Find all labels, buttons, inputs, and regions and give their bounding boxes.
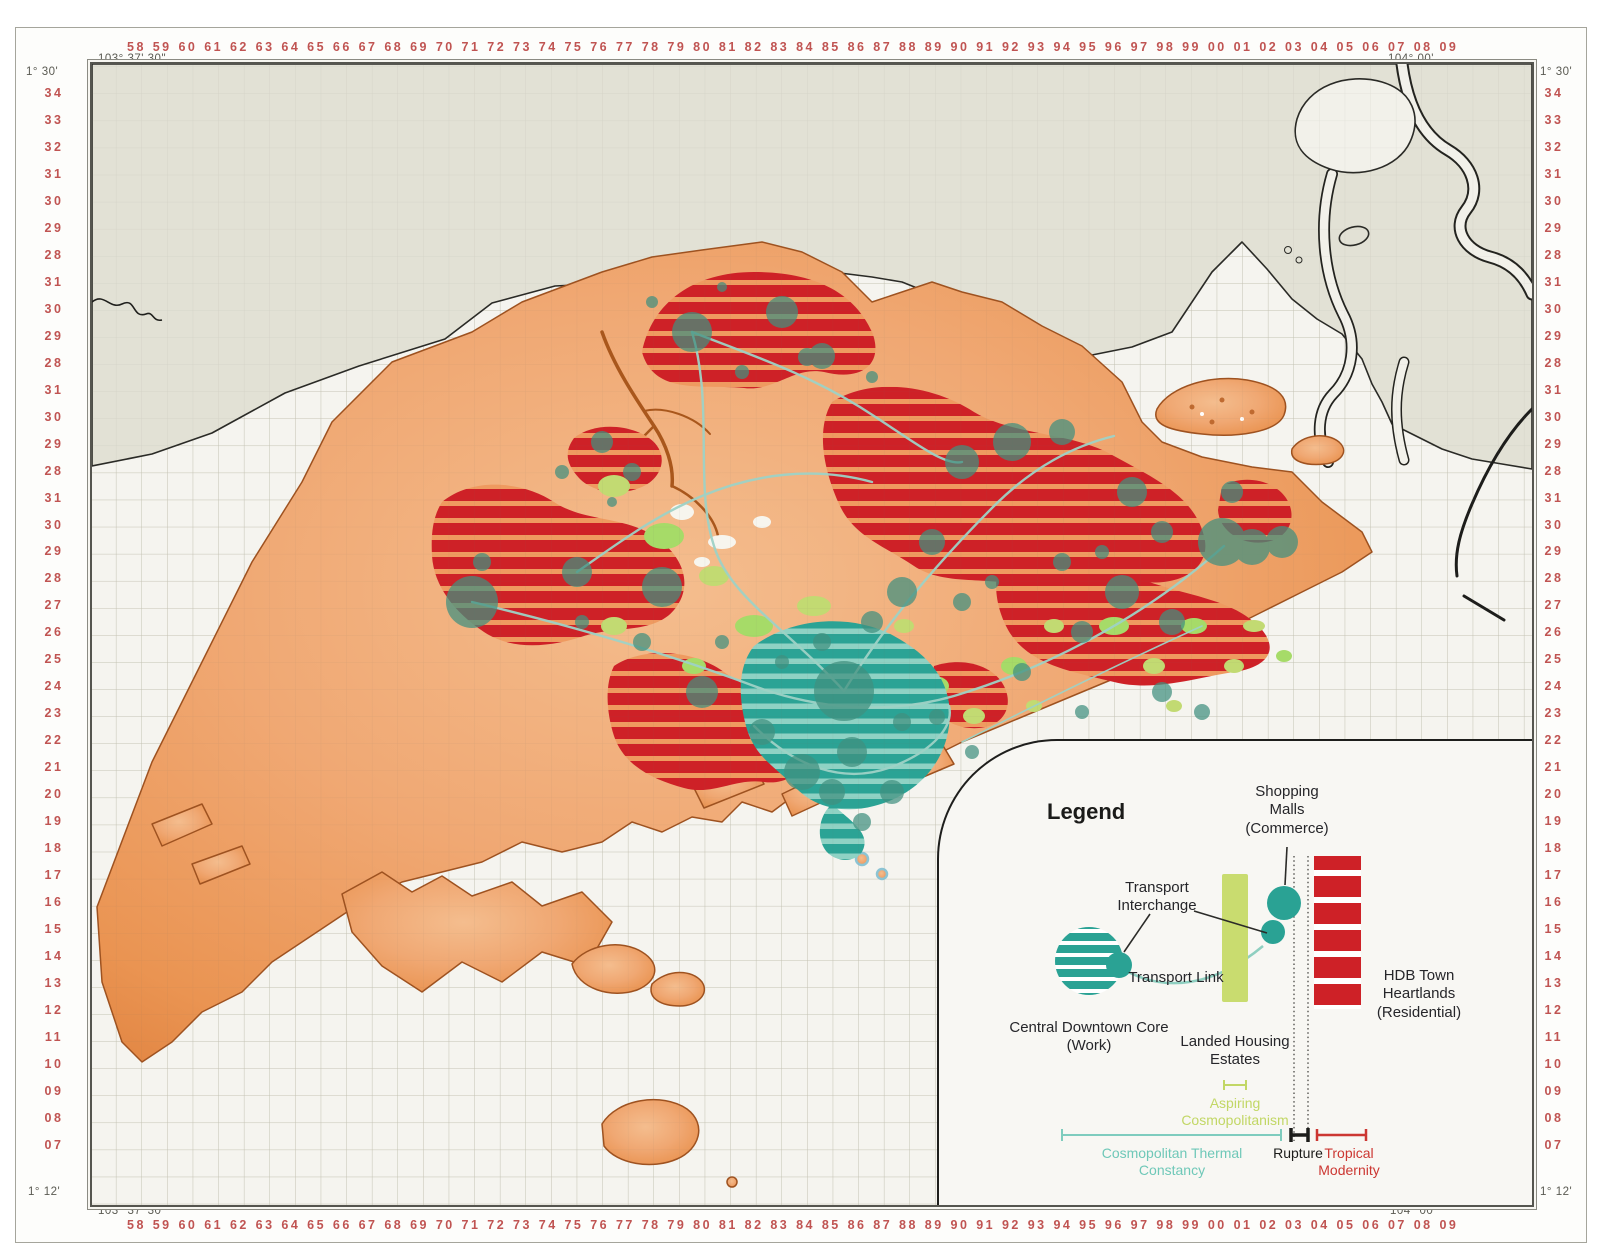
grid-label-x: 58 <box>127 40 146 54</box>
grid-label-x: 09 <box>1439 1218 1458 1232</box>
grid-label-y: 31 <box>1545 167 1564 181</box>
grid-label-y: 20 <box>45 787 64 801</box>
legend-label-hdb-town: HDB Town Heartlands (Residential) <box>1364 967 1474 1022</box>
grid-label-y: 14 <box>45 949 64 963</box>
longitude-axis-top: 5859606162636465666768697071727374757677… <box>127 40 1459 54</box>
grid-label-y: 28 <box>1545 248 1564 262</box>
grid-label-x: 87 <box>873 1218 892 1232</box>
map-sheet: 5859606162636465666768697071727374757677… <box>0 0 1600 1253</box>
grid-label-x: 76 <box>590 1218 609 1232</box>
grid-label-y: 30 <box>1545 194 1564 208</box>
grid-label-x: 72 <box>487 40 506 54</box>
grid-label-y: 27 <box>1545 598 1564 612</box>
grid-label-y: 22 <box>45 733 64 747</box>
grid-label-y: 12 <box>45 1003 64 1017</box>
grid-label-y: 23 <box>1545 706 1564 720</box>
grid-label-y: 08 <box>1545 1111 1564 1125</box>
grid-label-x: 80 <box>693 1218 712 1232</box>
grid-label-x: 78 <box>642 1218 661 1232</box>
grid-label-y: 11 <box>1545 1030 1563 1044</box>
grid-label-y: 29 <box>1545 329 1564 343</box>
grid-label-y: 28 <box>45 464 64 478</box>
grid-label-x: 07 <box>1388 40 1407 54</box>
grid-label-x: 73 <box>513 40 532 54</box>
grid-label-x: 94 <box>1053 1218 1072 1232</box>
grid-label-x: 00 <box>1208 40 1227 54</box>
grid-label-x: 88 <box>899 40 918 54</box>
grid-label-y: 17 <box>1545 868 1564 882</box>
grid-label-y: 29 <box>1545 544 1564 558</box>
grid-label-x: 76 <box>590 40 609 54</box>
grid-label-y: 21 <box>1545 760 1564 774</box>
grid-label-x: 80 <box>693 40 712 54</box>
grid-label-x: 98 <box>1156 1218 1175 1232</box>
grid-label-x: 98 <box>1156 40 1175 54</box>
legend-label-cosmopolitan: Cosmopolitan Thermal Constancy <box>1091 1145 1253 1179</box>
grid-label-x: 75 <box>564 1218 583 1232</box>
grid-label-x: 84 <box>796 1218 815 1232</box>
grid-label-x: 08 <box>1414 1218 1433 1232</box>
grid-label-x: 03 <box>1285 40 1304 54</box>
grid-label-x: 06 <box>1362 40 1381 54</box>
grid-label-x: 90 <box>951 40 970 54</box>
grid-label-y: 34 <box>45 86 64 100</box>
grid-label-x: 64 <box>281 40 300 54</box>
lat-corner-top-right: 1° 30' <box>1540 66 1572 78</box>
grid-label-x: 89 <box>925 1218 944 1232</box>
grid-label-y: 15 <box>1545 922 1564 936</box>
latitude-axis-right: 3433323130292831302928313029283130292827… <box>1534 86 1574 1152</box>
longitude-axis-bottom: 5859606162636465666768697071727374757677… <box>127 1218 1459 1232</box>
grid-label-y: 11 <box>45 1030 63 1044</box>
legend-panel: Legend <box>937 739 1534 1207</box>
hdb-town-symbol <box>1314 856 1361 1009</box>
grid-label-y: 09 <box>1545 1084 1564 1098</box>
grid-label-x: 95 <box>1079 1218 1098 1232</box>
grid-label-x: 66 <box>333 40 352 54</box>
shopping-mall-symbol <box>1267 886 1301 920</box>
grid-label-x: 91 <box>976 40 995 54</box>
grid-label-x: 96 <box>1105 1218 1124 1232</box>
grid-label-y: 31 <box>45 491 64 505</box>
grid-label-x: 79 <box>667 1218 686 1232</box>
grid-label-y: 24 <box>1545 679 1564 693</box>
grid-label-x: 60 <box>178 40 197 54</box>
grid-label-x: 89 <box>925 40 944 54</box>
grid-label-y: 15 <box>45 922 64 936</box>
grid-label-x: 86 <box>848 40 867 54</box>
grid-label-x: 83 <box>770 40 789 54</box>
grid-label-x: 75 <box>564 40 583 54</box>
grid-label-x: 93 <box>1028 1218 1047 1232</box>
grid-label-y: 30 <box>1545 518 1564 532</box>
grid-label-x: 07 <box>1388 1218 1407 1232</box>
grid-label-y: 17 <box>45 868 64 882</box>
grid-label-y: 19 <box>1545 814 1564 828</box>
grid-label-y: 09 <box>45 1084 64 1098</box>
grid-label-x: 77 <box>616 40 635 54</box>
grid-label-y: 31 <box>1545 491 1564 505</box>
grid-label-x: 06 <box>1362 1218 1381 1232</box>
latitude-axis-left: 3433323130292831302928313029283130292827… <box>34 86 74 1152</box>
grid-label-x: 83 <box>770 1218 789 1232</box>
lat-corner-bottom-left: 1° 12' <box>28 1186 60 1198</box>
grid-label-x: 60 <box>178 1218 197 1232</box>
legend-label-aspiring: Aspiring Cosmopolitanism <box>1165 1095 1305 1129</box>
grid-label-x: 85 <box>822 40 841 54</box>
grid-label-y: 25 <box>45 652 64 666</box>
grid-label-x: 63 <box>256 40 275 54</box>
grid-label-x: 02 <box>1259 1218 1278 1232</box>
grid-label-y: 26 <box>1545 625 1564 639</box>
grid-label-y: 29 <box>45 437 64 451</box>
grid-label-x: 78 <box>642 40 661 54</box>
grid-label-x: 82 <box>745 40 764 54</box>
legend-label-transport-interchange: Transport Interchange <box>1102 879 1212 916</box>
grid-label-y: 07 <box>45 1138 64 1152</box>
grid-label-x: 85 <box>822 1218 841 1232</box>
grid-label-x: 81 <box>719 1218 738 1232</box>
grid-label-y: 30 <box>45 194 64 208</box>
grid-label-x: 68 <box>384 40 403 54</box>
grid-label-y: 13 <box>1545 976 1564 990</box>
grid-label-y: 29 <box>1545 221 1564 235</box>
grid-label-y: 29 <box>1545 437 1564 451</box>
grid-label-x: 95 <box>1079 40 1098 54</box>
grid-label-y: 24 <box>45 679 64 693</box>
grid-label-x: 99 <box>1182 40 1201 54</box>
grid-label-x: 97 <box>1131 40 1150 54</box>
grid-label-x: 08 <box>1414 40 1433 54</box>
grid-label-y: 33 <box>45 113 64 127</box>
legend-label-shopping-malls: Shopping Malls (Commerce) <box>1239 783 1335 838</box>
grid-label-x: 71 <box>462 1218 481 1232</box>
grid-label-y: 32 <box>45 140 64 154</box>
grid-label-x: 97 <box>1131 1218 1150 1232</box>
grid-label-x: 96 <box>1105 40 1124 54</box>
grid-label-x: 63 <box>256 1218 275 1232</box>
grid-label-x: 88 <box>899 1218 918 1232</box>
grid-label-x: 65 <box>307 1218 326 1232</box>
grid-label-y: 30 <box>1545 302 1564 316</box>
grid-label-y: 32 <box>1545 140 1564 154</box>
grid-label-x: 04 <box>1311 1218 1330 1232</box>
grid-label-x: 70 <box>436 1218 455 1232</box>
grid-label-y: 33 <box>1545 113 1564 127</box>
grid-label-x: 84 <box>796 40 815 54</box>
grid-label-x: 66 <box>333 1218 352 1232</box>
grid-label-x: 67 <box>359 40 378 54</box>
grid-label-y: 19 <box>45 814 64 828</box>
grid-label-x: 59 <box>153 40 172 54</box>
grid-label-y: 31 <box>1545 383 1564 397</box>
grid-label-x: 58 <box>127 1218 146 1232</box>
grid-label-x: 74 <box>539 40 558 54</box>
grid-label-y: 34 <box>1545 86 1564 100</box>
map-frame: Legend <box>90 62 1534 1207</box>
grid-label-x: 64 <box>281 1218 300 1232</box>
grid-label-y: 31 <box>45 383 64 397</box>
grid-label-y: 28 <box>45 248 64 262</box>
lat-corner-top-left: 1° 30' <box>26 66 58 78</box>
grid-label-x: 69 <box>410 1218 429 1232</box>
grid-label-x: 65 <box>307 40 326 54</box>
grid-label-y: 23 <box>45 706 64 720</box>
grid-label-y: 13 <box>45 976 64 990</box>
grid-label-x: 01 <box>1234 40 1253 54</box>
grid-label-y: 07 <box>1545 1138 1564 1152</box>
grid-label-x: 70 <box>436 40 455 54</box>
grid-label-y: 29 <box>45 544 64 558</box>
grid-label-y: 28 <box>1545 356 1564 370</box>
tropical-bracket <box>1317 1129 1366 1141</box>
grid-label-y: 10 <box>1545 1057 1564 1071</box>
grid-label-x: 77 <box>616 1218 635 1232</box>
legend-label-tropical: Tropical Modernity <box>1311 1145 1387 1179</box>
aspiring-bracket <box>1224 1080 1246 1090</box>
grid-label-x: 92 <box>1002 40 1021 54</box>
grid-label-y: 18 <box>1545 841 1564 855</box>
grid-label-y: 27 <box>45 598 64 612</box>
grid-label-x: 93 <box>1028 40 1047 54</box>
grid-label-y: 31 <box>45 275 64 289</box>
grid-label-x: 82 <box>745 1218 764 1232</box>
legend-label-central-downtown: Central Downtown Core (Work) <box>1009 1019 1169 1056</box>
grid-label-x: 59 <box>153 1218 172 1232</box>
grid-label-y: 29 <box>45 221 64 235</box>
grid-label-y: 30 <box>1545 410 1564 424</box>
grid-label-x: 61 <box>204 1218 223 1232</box>
lat-corner-bottom-right: 1° 12' <box>1540 1186 1572 1198</box>
grid-label-y: 30 <box>45 410 64 424</box>
grid-label-y: 20 <box>1545 787 1564 801</box>
grid-label-x: 73 <box>513 1218 532 1232</box>
grid-label-y: 31 <box>45 167 64 181</box>
grid-label-y: 21 <box>45 760 64 774</box>
grid-label-y: 29 <box>45 329 64 343</box>
grid-label-x: 62 <box>230 40 249 54</box>
grid-label-y: 28 <box>45 571 64 585</box>
grid-label-x: 09 <box>1439 40 1458 54</box>
grid-label-y: 16 <box>1545 895 1564 909</box>
grid-label-x: 02 <box>1259 40 1278 54</box>
legend-label-transport-link: Transport Link <box>1121 969 1231 987</box>
grid-label-x: 81 <box>719 40 738 54</box>
grid-label-x: 74 <box>539 1218 558 1232</box>
grid-label-y: 30 <box>45 518 64 532</box>
grid-label-x: 94 <box>1053 40 1072 54</box>
grid-label-x: 62 <box>230 1218 249 1232</box>
cosmopolitan-bracket <box>1062 1129 1281 1141</box>
grid-label-x: 90 <box>951 1218 970 1232</box>
grid-label-x: 68 <box>384 1218 403 1232</box>
grid-label-x: 05 <box>1337 40 1356 54</box>
grid-label-y: 30 <box>45 302 64 316</box>
grid-label-y: 12 <box>1545 1003 1564 1017</box>
grid-label-y: 18 <box>45 841 64 855</box>
grid-label-y: 28 <box>1545 464 1564 478</box>
grid-label-x: 69 <box>410 40 429 54</box>
grid-label-x: 86 <box>848 1218 867 1232</box>
grid-label-x: 71 <box>462 40 481 54</box>
grid-label-x: 87 <box>873 40 892 54</box>
grid-label-x: 91 <box>976 1218 995 1232</box>
grid-label-x: 61 <box>204 40 223 54</box>
grid-label-y: 28 <box>1545 571 1564 585</box>
grid-label-y: 22 <box>1545 733 1564 747</box>
grid-label-x: 04 <box>1311 40 1330 54</box>
grid-label-y: 10 <box>45 1057 64 1071</box>
grid-label-y: 31 <box>1545 275 1564 289</box>
grid-label-x: 72 <box>487 1218 506 1232</box>
grid-label-x: 05 <box>1337 1218 1356 1232</box>
grid-label-y: 16 <box>45 895 64 909</box>
grid-label-x: 00 <box>1208 1218 1227 1232</box>
grid-label-y: 08 <box>45 1111 64 1125</box>
grid-label-y: 14 <box>1545 949 1564 963</box>
grid-label-x: 01 <box>1234 1218 1253 1232</box>
grid-label-x: 99 <box>1182 1218 1201 1232</box>
legend-label-landed-housing: Landed Housing Estates <box>1160 1033 1310 1070</box>
grid-label-y: 28 <box>45 356 64 370</box>
grid-label-x: 67 <box>359 1218 378 1232</box>
grid-label-x: 79 <box>667 40 686 54</box>
grid-label-x: 03 <box>1285 1218 1304 1232</box>
grid-label-y: 25 <box>1545 652 1564 666</box>
grid-label-x: 92 <box>1002 1218 1021 1232</box>
grid-label-y: 26 <box>45 625 64 639</box>
